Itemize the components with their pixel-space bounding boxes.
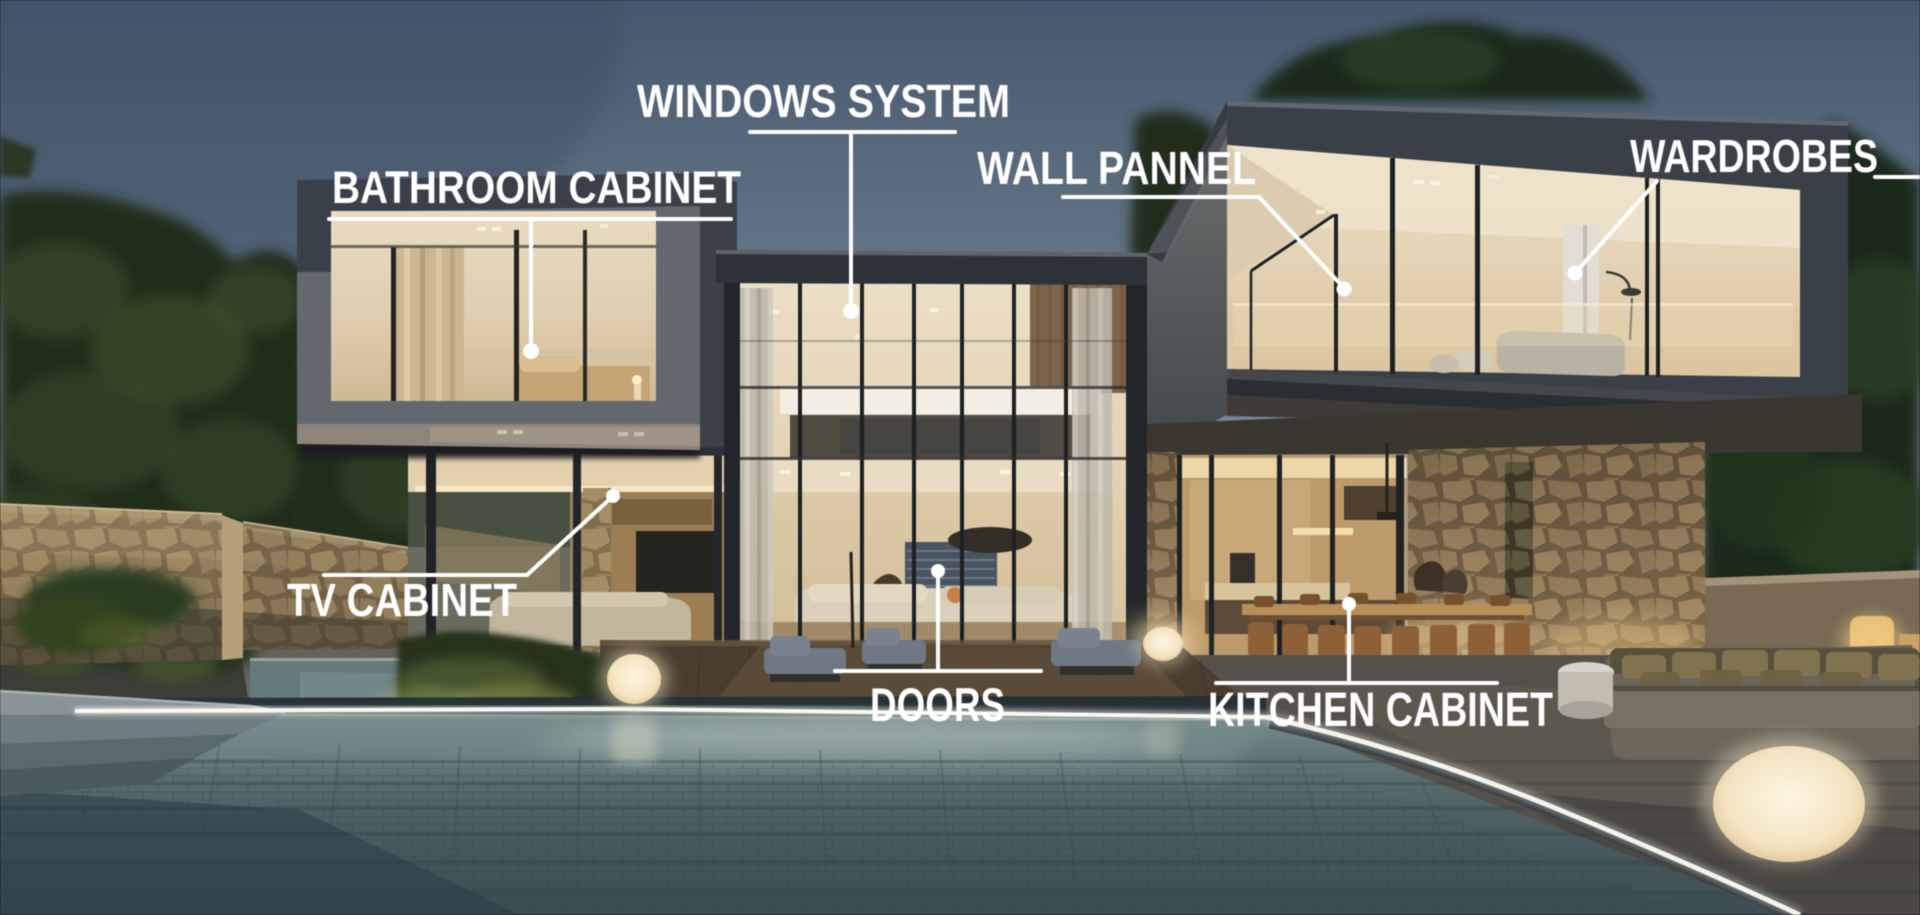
svg-text:TV CABINET: TV CABINET: [287, 574, 517, 626]
svg-text:WARDROBES: WARDROBES: [1630, 130, 1878, 182]
svg-text:WALL PANNEL: WALL PANNEL: [977, 142, 1256, 194]
svg-text:KITCHEN CABINET: KITCHEN CABINET: [1208, 684, 1553, 737]
svg-text:WINDOWS SYSTEM: WINDOWS SYSTEM: [637, 75, 1010, 127]
svg-text:BATHROOM CABINET: BATHROOM CABINET: [332, 162, 741, 213]
svg-text:DOORS: DOORS: [870, 678, 1005, 731]
